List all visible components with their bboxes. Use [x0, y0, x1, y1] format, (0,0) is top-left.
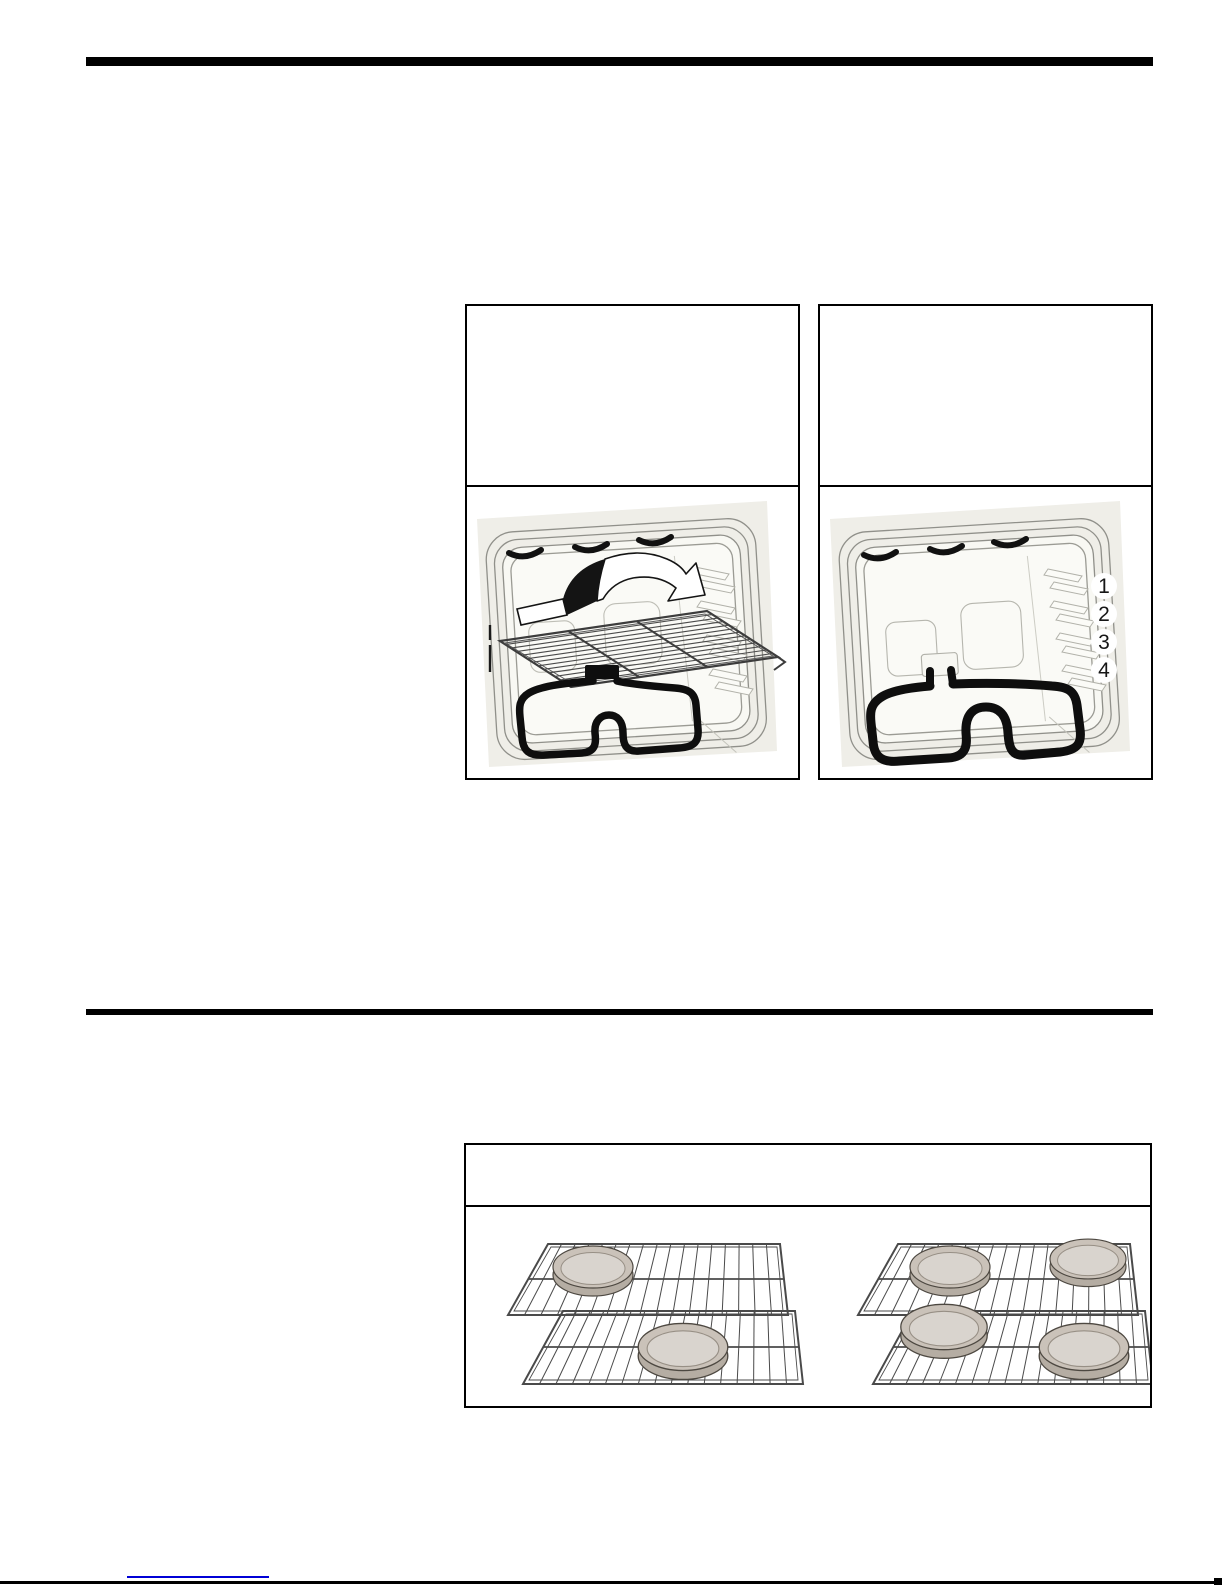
figure-illustration-area-bottom: [466, 1209, 1150, 1406]
oven-rack-positions-illustration: 1 2 3 4: [820, 489, 1151, 778]
cake-pan: [1050, 1239, 1126, 1287]
cake-pan: [638, 1323, 728, 1379]
cake-pan: [901, 1304, 987, 1358]
figure-illustration-area-left: [467, 489, 798, 778]
page-bottom-edge-line: [0, 1581, 1221, 1584]
rack-position-label-2: 2: [1098, 603, 1110, 626]
cake-pan: [553, 1246, 633, 1296]
manual-page: 1 2 3 4: [0, 0, 1225, 1585]
cake-pan: [1039, 1323, 1129, 1379]
page-bottom-edge-nub: [1214, 1578, 1222, 1585]
oven-with-rack-illustration: [467, 489, 798, 778]
figure-caption-area-left: [467, 306, 798, 487]
figure-box-pan-placement: [464, 1143, 1152, 1408]
rack-group-two-pans: [508, 1244, 803, 1384]
section-rule-mid: [86, 1009, 1153, 1015]
figure-box-rack-positions: 1 2 3 4: [818, 304, 1153, 780]
rack-position-label-4: 4: [1098, 659, 1110, 682]
rack-position-label-1: 1: [1098, 575, 1110, 598]
cake-pan: [910, 1246, 990, 1296]
rack-position-label-3: 3: [1098, 631, 1110, 654]
figure-box-rack-removal: [465, 304, 800, 780]
pan-placement-illustration: [466, 1209, 1150, 1406]
figure-caption-area-right: [820, 306, 1151, 487]
figure-illustration-area-right: 1 2 3 4: [820, 489, 1151, 778]
rack-group-four-pans: [858, 1239, 1150, 1384]
figure-caption-area-bottom: [466, 1145, 1150, 1207]
section-rule-top: [86, 57, 1153, 66]
footer-link[interactable]: [127, 1566, 269, 1578]
